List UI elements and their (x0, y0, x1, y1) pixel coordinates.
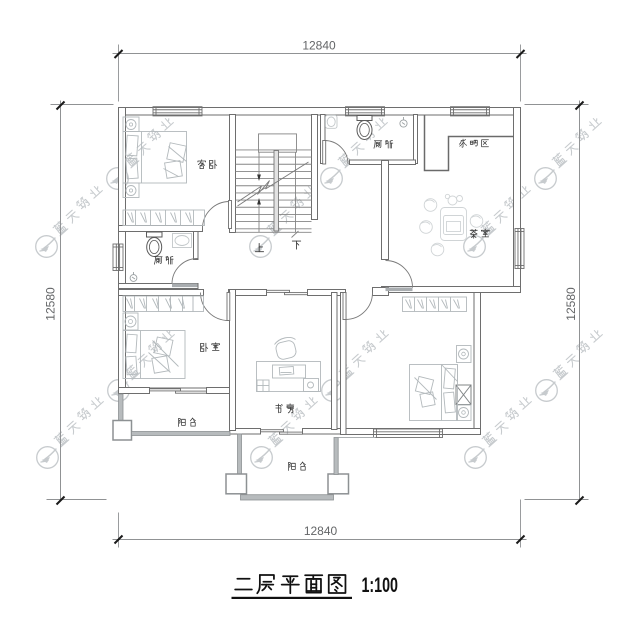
svg-text:12840: 12840 (304, 524, 338, 538)
svg-text:1:100: 1:100 (362, 573, 399, 596)
svg-text:12580: 12580 (44, 287, 58, 321)
svg-text:12580: 12580 (564, 287, 578, 321)
svg-text:12840: 12840 (302, 39, 336, 53)
